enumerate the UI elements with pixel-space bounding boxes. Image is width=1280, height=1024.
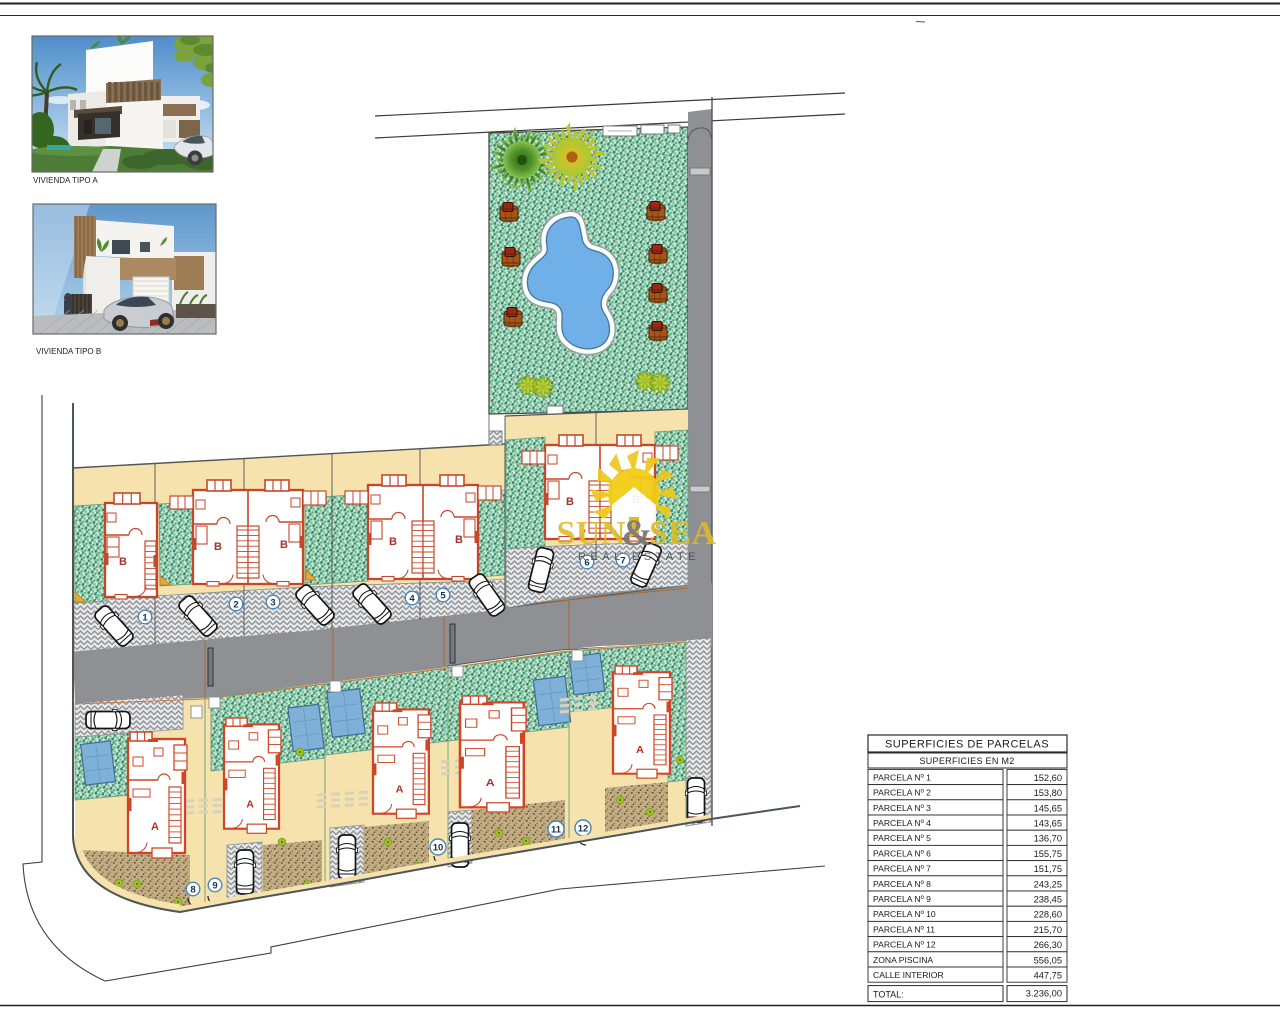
svg-text:8: 8 bbox=[190, 884, 195, 895]
svg-text:PARCELA Nº 8: PARCELA Nº 8 bbox=[873, 879, 931, 889]
svg-text:PARCELA Nº 7: PARCELA Nº 7 bbox=[873, 864, 931, 874]
svg-text:1: 1 bbox=[142, 612, 148, 623]
svg-text:PARCELA Nº 2: PARCELA Nº 2 bbox=[873, 788, 931, 798]
svg-text:PARCELA Nº 6: PARCELA Nº 6 bbox=[873, 848, 931, 858]
svg-text:243,25: 243,25 bbox=[1034, 879, 1062, 889]
svg-text:PARCELA Nº 10: PARCELA Nº 10 bbox=[873, 909, 936, 919]
svg-text:238,45: 238,45 bbox=[1034, 895, 1062, 905]
svg-text:152,60: 152,60 bbox=[1034, 773, 1062, 783]
svg-text:VIVIENDA TIPO A: VIVIENDA TIPO A bbox=[33, 176, 98, 185]
svg-text:266,30: 266,30 bbox=[1034, 940, 1062, 950]
svg-text:PARCELA Nº 11: PARCELA Nº 11 bbox=[873, 924, 935, 934]
svg-text:TOTAL:: TOTAL: bbox=[873, 990, 904, 1000]
svg-text:SEA: SEA bbox=[649, 515, 717, 552]
svg-text:153,80: 153,80 bbox=[1034, 788, 1062, 798]
svg-text:145,65: 145,65 bbox=[1034, 803, 1062, 813]
svg-text:2: 2 bbox=[233, 599, 238, 610]
svg-text:PARCELA Nº 9: PARCELA Nº 9 bbox=[873, 894, 931, 904]
svg-text:PARCELA Nº 1: PARCELA Nº 1 bbox=[873, 772, 931, 782]
svg-text:12: 12 bbox=[578, 823, 589, 834]
svg-text:SUPERFICIES DE PARCELAS: SUPERFICIES DE PARCELAS bbox=[885, 739, 1049, 751]
svg-text:4: 4 bbox=[409, 593, 415, 604]
svg-text:9: 9 bbox=[212, 880, 217, 891]
svg-text:136,70: 136,70 bbox=[1034, 834, 1062, 844]
svg-text:5: 5 bbox=[440, 590, 446, 601]
svg-text:447,75: 447,75 bbox=[1034, 971, 1062, 981]
svg-text:CALLE INTERIOR: CALLE INTERIOR bbox=[873, 970, 944, 980]
svg-text:VIVIENDA TIPO B: VIVIENDA TIPO B bbox=[36, 347, 101, 356]
svg-text:155,75: 155,75 bbox=[1034, 849, 1062, 859]
svg-text:SUN: SUN bbox=[556, 515, 626, 552]
svg-text:143,65: 143,65 bbox=[1034, 819, 1062, 829]
svg-text:556,05: 556,05 bbox=[1034, 955, 1062, 965]
svg-text:215,70: 215,70 bbox=[1034, 925, 1062, 935]
svg-text:3: 3 bbox=[270, 597, 275, 608]
svg-text:PARCELA Nº 12: PARCELA Nº 12 bbox=[873, 940, 936, 950]
svg-text:PARCELA Nº 3: PARCELA Nº 3 bbox=[873, 803, 931, 813]
svg-text:228,60: 228,60 bbox=[1034, 910, 1062, 920]
svg-text:3.236,00: 3.236,00 bbox=[1026, 989, 1062, 999]
svg-text:PARCELA Nº 4: PARCELA Nº 4 bbox=[873, 818, 931, 828]
svg-text:SUPERFICIES EN M2: SUPERFICIES EN M2 bbox=[919, 756, 1014, 766]
svg-text:ZONA PISCINA: ZONA PISCINA bbox=[873, 955, 933, 965]
svg-text:&: & bbox=[622, 513, 653, 554]
svg-text:REAL ESTATE: REAL ESTATE bbox=[578, 551, 700, 563]
svg-text:151,75: 151,75 bbox=[1034, 864, 1062, 874]
svg-text:10: 10 bbox=[433, 842, 444, 853]
svg-text:PARCELA Nº 5: PARCELA Nº 5 bbox=[873, 833, 931, 843]
svg-text:11: 11 bbox=[551, 824, 562, 835]
